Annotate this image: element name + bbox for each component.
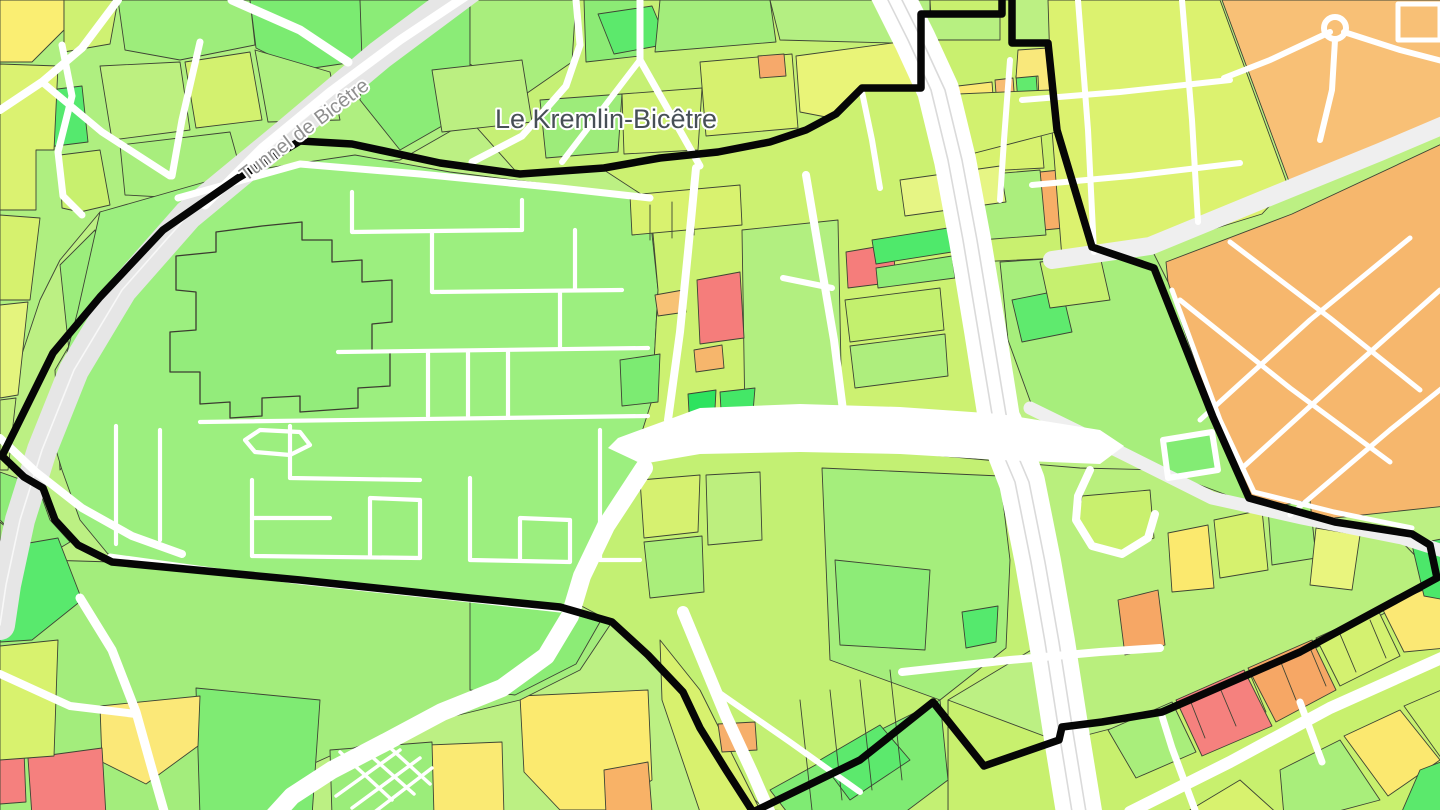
parcel	[100, 62, 190, 140]
map-canvas[interactable]: Le Kremlin-BicêtreTunnel de Bicêtre	[0, 0, 1440, 810]
parcel	[835, 560, 930, 650]
map-viewport[interactable]: Le Kremlin-BicêtreTunnel de Bicêtre	[0, 0, 1440, 810]
parcel	[644, 536, 704, 598]
parcel	[962, 606, 998, 648]
parcel	[1214, 510, 1268, 578]
parcel	[1310, 528, 1360, 590]
parcel	[694, 345, 724, 372]
parcel	[758, 54, 786, 78]
parcel	[706, 472, 762, 545]
parcel	[620, 354, 660, 406]
parcel	[640, 475, 700, 538]
parcel	[697, 272, 744, 344]
parcel	[1168, 525, 1214, 592]
parcel	[604, 762, 652, 810]
place-label-le-kremlin-bicetre: Le Kremlin-Bicêtre	[495, 104, 717, 134]
